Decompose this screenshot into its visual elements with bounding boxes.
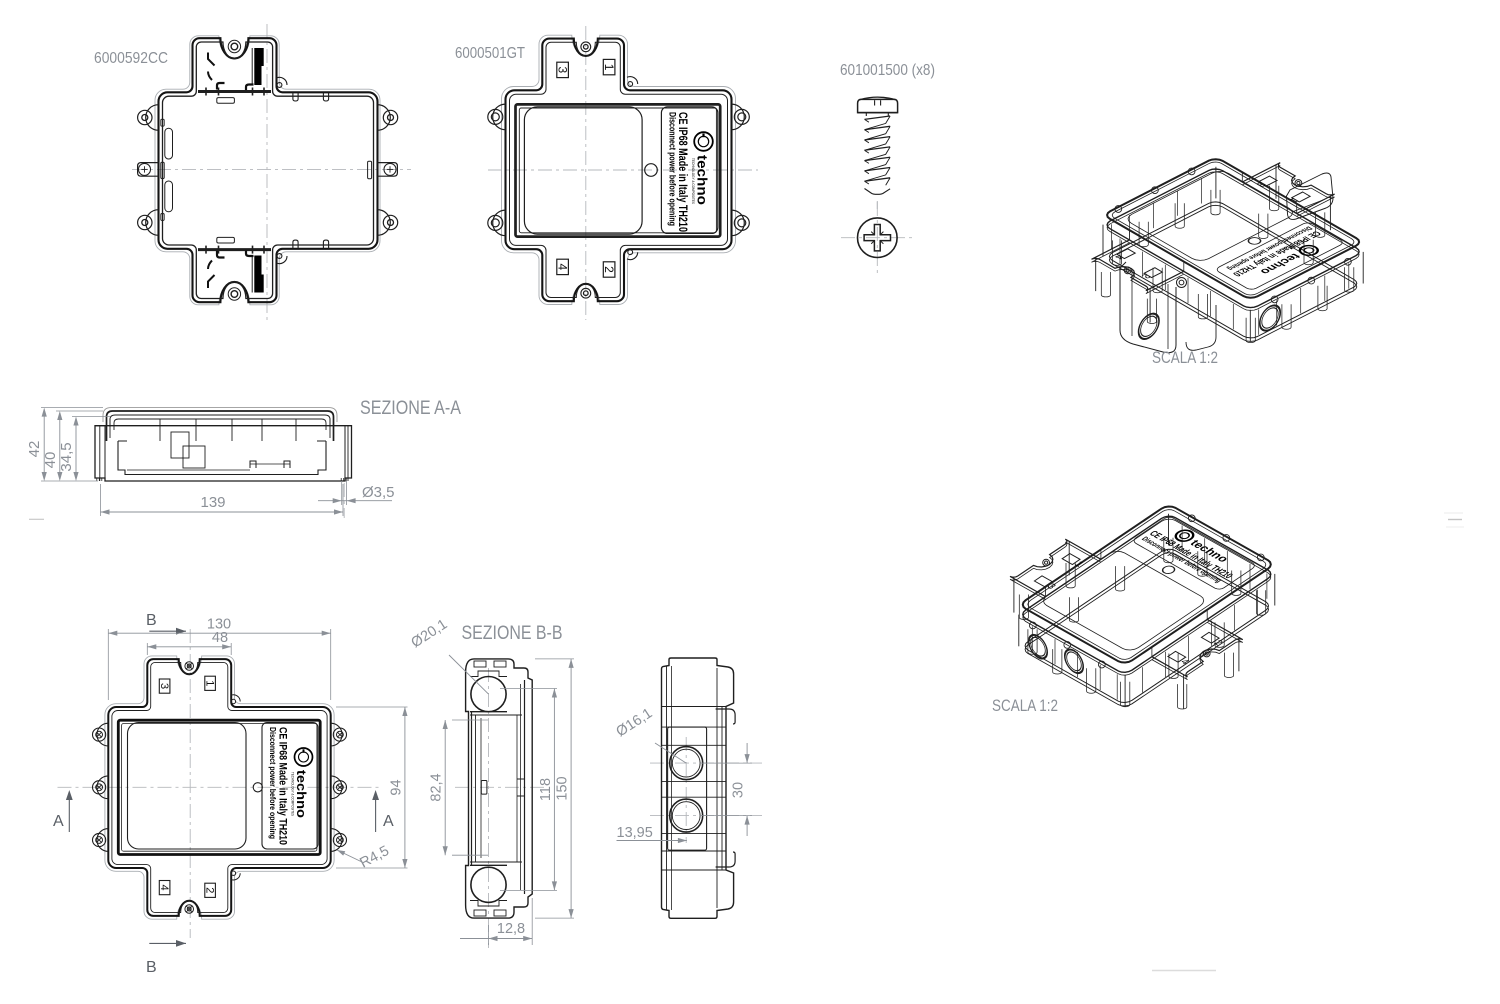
svg-text:82,4: 82,4 [429, 773, 445, 801]
svg-text:13,95: 13,95 [617, 825, 653, 841]
svg-text:40: 40 [42, 452, 59, 469]
svg-text:B: B [146, 959, 157, 976]
svg-text:Disconnect power before openin: Disconnect power before opening [268, 727, 278, 839]
svg-text:3: 3 [556, 67, 570, 74]
svg-text:34,5: 34,5 [58, 442, 75, 471]
svg-text:B: B [146, 612, 157, 629]
svg-text:A: A [383, 813, 394, 830]
svg-text:SEZIONE B-B: SEZIONE B-B [462, 623, 563, 644]
svg-text:150: 150 [555, 776, 571, 800]
svg-text:techno: techno [694, 155, 709, 205]
svg-text:118: 118 [538, 778, 554, 801]
svg-text:6000501GT: 6000501GT [455, 45, 525, 62]
svg-text:48: 48 [212, 630, 228, 646]
svg-text:SCALA 1:2: SCALA 1:2 [1152, 348, 1218, 367]
svg-text:A: A [53, 813, 64, 830]
svg-text:TECHNOLOGY & COMPOSITES: TECHNOLOGY & COMPOSITES [291, 772, 295, 816]
svg-text:1: 1 [203, 680, 215, 686]
svg-text:CE IP68 Made in Italy TH210: CE IP68 Made in Italy TH210 [276, 727, 288, 845]
svg-text:12,8: 12,8 [497, 921, 525, 937]
svg-text:42: 42 [26, 441, 43, 458]
svg-text:139: 139 [200, 494, 225, 511]
svg-text:4: 4 [158, 885, 170, 891]
svg-text:Ø3,5: Ø3,5 [362, 484, 395, 501]
svg-text:94: 94 [388, 779, 404, 795]
svg-text:4: 4 [556, 264, 570, 271]
svg-text:Disconnect power before openin: Disconnect power before opening [668, 112, 678, 226]
svg-text:2: 2 [602, 266, 616, 273]
svg-text:techno: techno [294, 770, 309, 818]
svg-text:30: 30 [731, 782, 747, 798]
svg-text:2: 2 [203, 887, 215, 893]
svg-text:1: 1 [602, 64, 616, 71]
svg-text:SCALA 1:2: SCALA 1:2 [992, 696, 1058, 715]
svg-text:TECHNOLOGY & COMPOSITES: TECHNOLOGY & COMPOSITES [691, 158, 695, 205]
svg-text:CE IP68 Made in Italy TH210: CE IP68 Made in Italy TH210 [676, 112, 688, 232]
svg-text:3: 3 [158, 683, 170, 689]
svg-text:601001500 (x8): 601001500 (x8) [840, 62, 935, 79]
svg-text:6000592CC: 6000592CC [94, 50, 168, 67]
svg-text:SEZIONE A-A: SEZIONE A-A [360, 398, 461, 419]
